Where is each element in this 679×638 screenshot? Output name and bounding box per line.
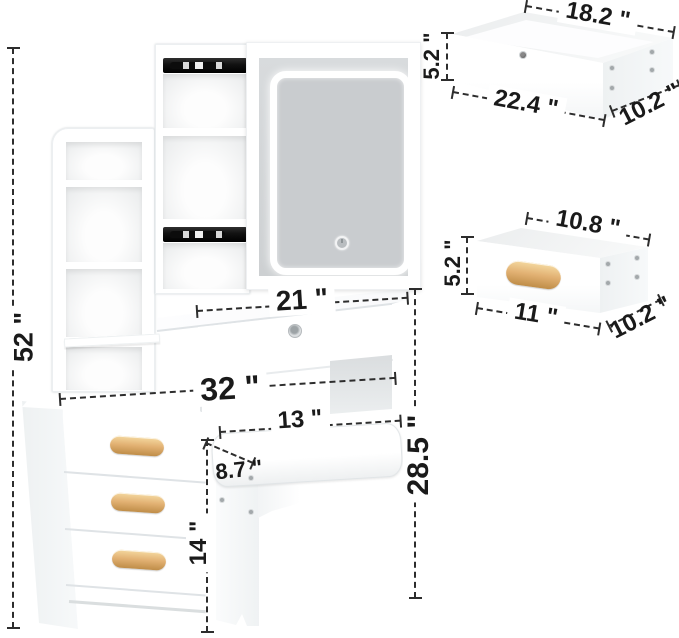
screw-dot: [610, 86, 614, 90]
screw-dot: [606, 281, 610, 285]
cabinet-compartment-3: [163, 243, 247, 289]
cabinet-compartment-2: [163, 136, 247, 219]
dim-label-stool-width: 13 ": [270, 405, 330, 435]
screw-dot: [635, 256, 639, 260]
tower-compartment-2: [66, 187, 142, 262]
drawer-lock-knob-icon: [288, 324, 302, 338]
tower-compartment-4: [66, 347, 142, 390]
large-drawer-screw-icon: [520, 52, 526, 58]
screw-dot: [650, 50, 654, 54]
tower-compartment-3: [66, 269, 142, 337]
screw-dot: [249, 510, 253, 514]
dim-line-large-drawer-height: [446, 33, 448, 80]
product-dimension-diagram: 52 " 21 " 32 " 13 " 8.7 " 14 " 28.5 " 18…: [0, 0, 679, 638]
cabinet-drawer-handle-3: [111, 549, 166, 571]
dim-label-stool-depth: 8.7 ": [214, 457, 263, 484]
mirror-slide-rail-top: [163, 58, 247, 73]
screw-dot: [610, 66, 614, 70]
power-touch-icon: [335, 236, 349, 250]
dim-label-desktop-width: 21 ": [268, 283, 336, 317]
dim-label-desk-height: 28.5 ": [403, 408, 435, 503]
shelf-tower: [52, 128, 155, 392]
power-glyph: [341, 239, 343, 243]
dim-line-small-drawer-height: [466, 237, 468, 294]
desk-knee-cubby: [330, 352, 394, 414]
cabinet-drawer-handle-2: [110, 492, 165, 514]
cabinet-compartment-1: [163, 74, 247, 128]
dim-label-stool-height: 14 ": [186, 514, 212, 573]
tower-compartment-1: [66, 142, 142, 180]
screw-dot: [650, 68, 654, 72]
dim-label-total-height: 52 ": [10, 306, 39, 368]
dim-label-large-drawer-height: 5.2 ": [421, 32, 443, 79]
cabinet-drawer-handle-1: [109, 435, 164, 457]
screw-dot: [606, 262, 610, 266]
screw-dot: [635, 275, 639, 279]
screw-dot: [220, 498, 224, 502]
led-light-ring: [270, 71, 411, 275]
dim-label-small-drawer-height: 5.2 ": [442, 239, 464, 286]
hidden-storage-cabinet: [155, 44, 250, 294]
dim-label-overall-width: 32 ": [192, 369, 268, 408]
mirror-slide-rail-bottom: [163, 227, 247, 242]
sliding-mirror-panel: [246, 42, 421, 290]
